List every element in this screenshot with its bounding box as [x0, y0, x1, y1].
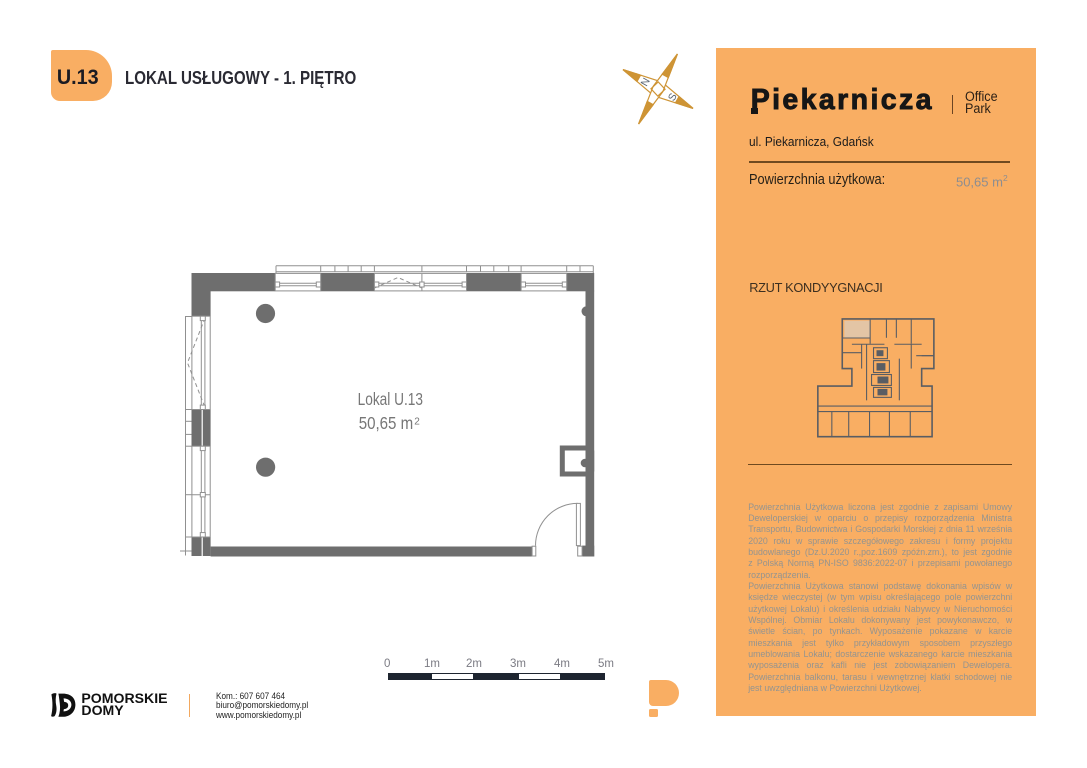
svg-text:Lokal U.13: Lokal U.13 [358, 389, 423, 409]
svg-text:50,65 m2: 50,65 m2 [359, 413, 421, 433]
